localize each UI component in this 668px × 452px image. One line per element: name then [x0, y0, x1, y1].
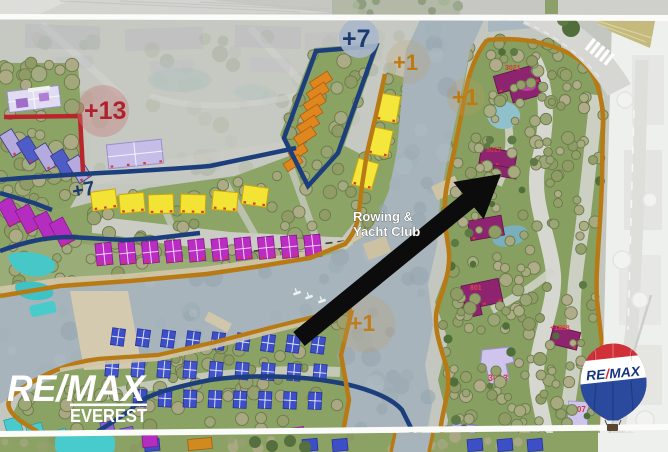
- svg-text:3021: 3021: [505, 65, 521, 72]
- svg-text:Yacht Club: Yacht Club: [353, 224, 420, 239]
- svg-text:+1888: +1888: [550, 325, 570, 332]
- svg-text:+7: +7: [70, 177, 96, 203]
- svg-text:+1: +1: [452, 84, 478, 110]
- svg-text:+7: +7: [342, 25, 371, 53]
- svg-text:801: 801: [470, 285, 482, 292]
- svg-text:+13: +13: [84, 97, 126, 125]
- svg-text:+1: +1: [349, 310, 375, 336]
- svg-text:EVEREST: EVEREST: [70, 406, 147, 426]
- svg-text:Rowing &: Rowing &: [353, 209, 413, 224]
- svg-text:RE/MAX: RE/MAX: [7, 368, 147, 409]
- svg-text:+1: +1: [393, 50, 418, 75]
